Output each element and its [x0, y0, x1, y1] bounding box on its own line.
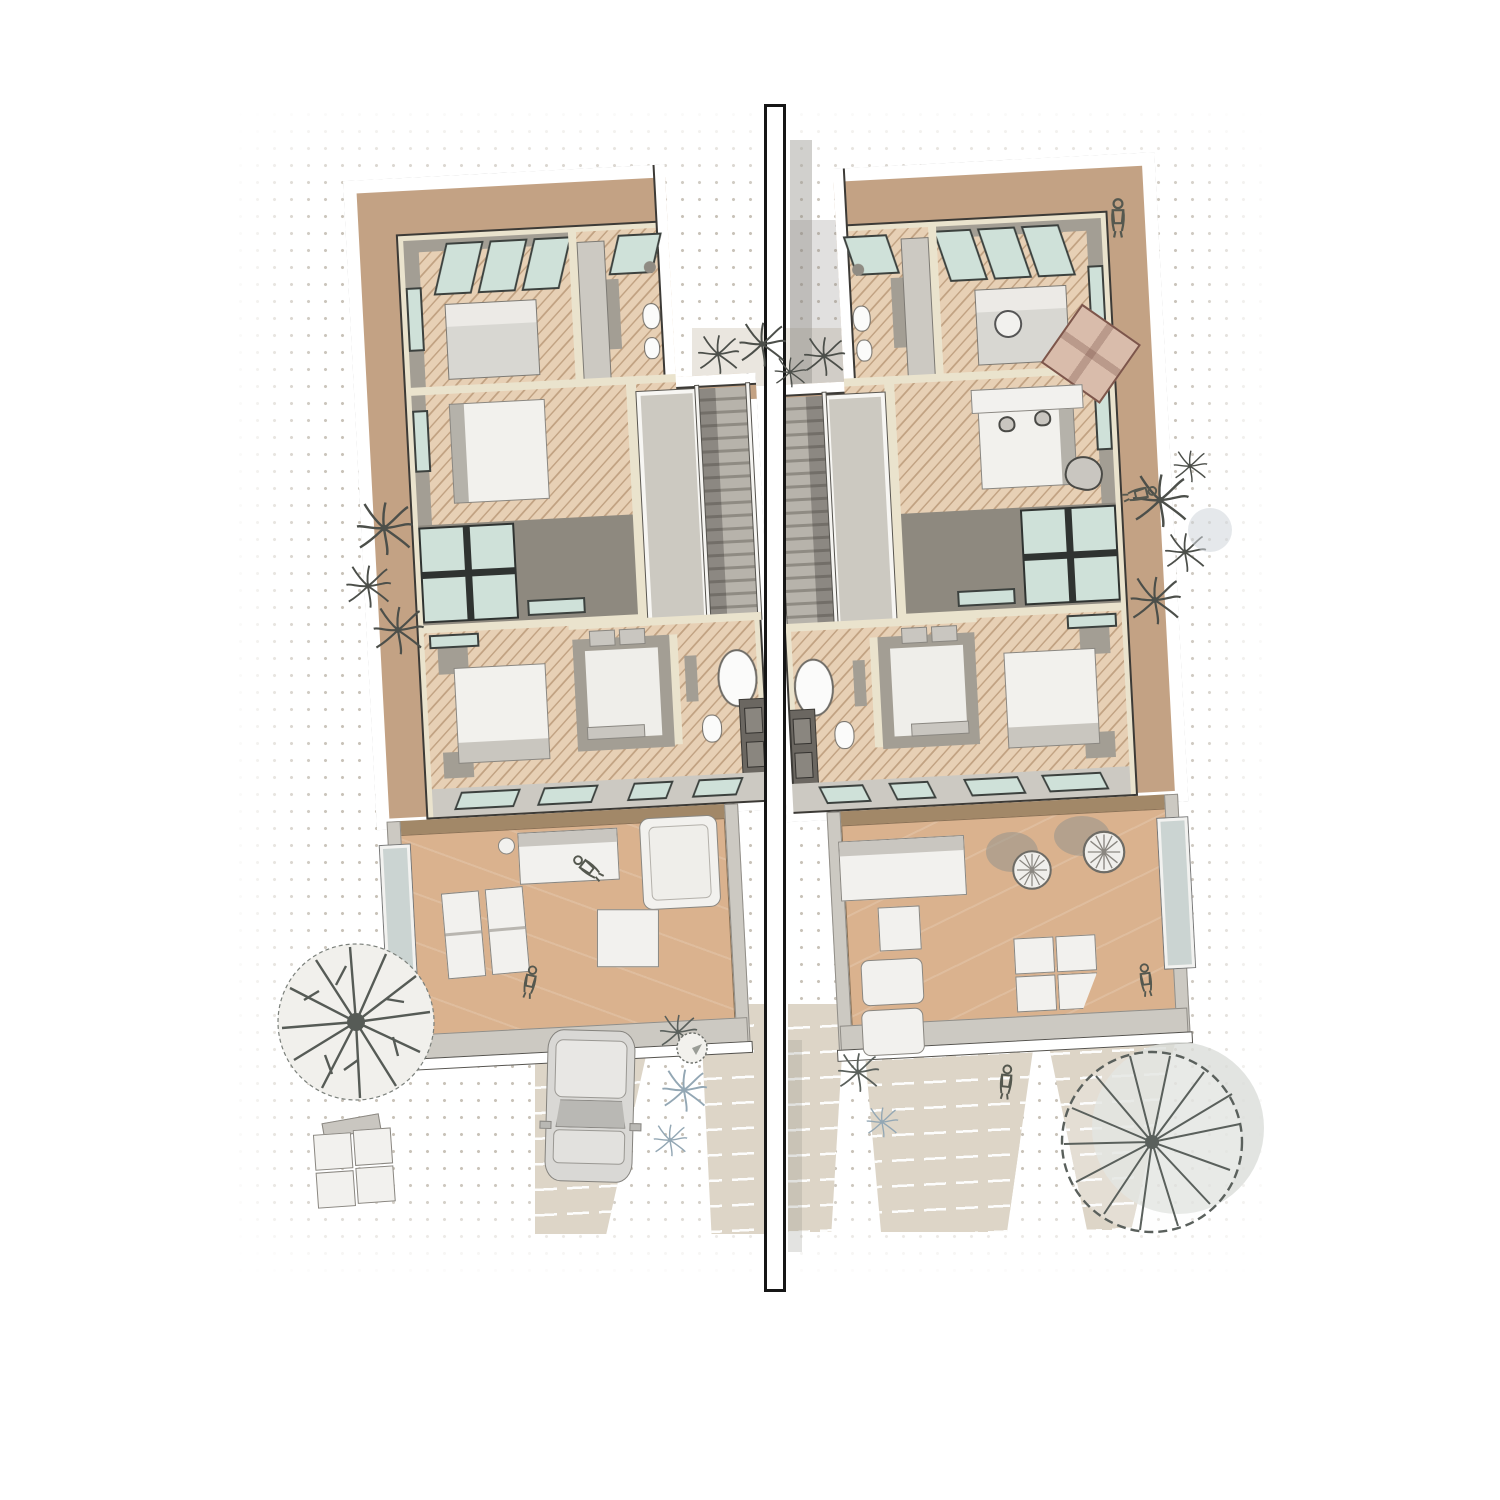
glass-floor — [454, 789, 521, 811]
bed — [449, 399, 550, 504]
car-mirror — [629, 1123, 641, 1131]
vanity-drawer — [794, 752, 813, 779]
bed — [1003, 648, 1100, 749]
toilet — [642, 303, 661, 330]
chair-cushion — [355, 1165, 395, 1204]
bed — [454, 663, 551, 764]
vanity-drawer — [744, 707, 763, 734]
left-dwelling-unit — [343, 160, 791, 1072]
sofa-back — [518, 829, 617, 847]
glass-floor — [1041, 772, 1110, 793]
master-window — [429, 633, 480, 650]
car-windshield — [555, 1099, 626, 1129]
outdoor-sofa — [838, 835, 967, 902]
wardrobe-open-door — [1057, 972, 1099, 1010]
vanity-drawer — [793, 718, 812, 745]
toilet — [834, 721, 855, 750]
void-low-window — [527, 597, 586, 616]
car — [538, 1029, 642, 1184]
bedroom2-window — [412, 410, 431, 473]
chair-cushion — [313, 1132, 353, 1171]
mirrored-shell-wrap — [753, 152, 1201, 1064]
outdoor-chair-set — [312, 1115, 398, 1210]
right-shell-host — [753, 152, 1201, 1064]
car-roof — [554, 1039, 627, 1099]
shelf — [684, 655, 698, 702]
sun-lounger — [860, 957, 924, 1006]
unit-shell — [343, 160, 791, 1072]
bed — [445, 299, 541, 380]
daybed — [639, 814, 722, 910]
glass-floor — [627, 781, 674, 801]
glass-floor — [537, 785, 599, 806]
recliner — [485, 886, 530, 975]
car-mirror — [539, 1121, 551, 1129]
vanity — [789, 709, 819, 790]
bidet — [644, 337, 661, 360]
basket — [619, 628, 646, 645]
glass-floor — [692, 777, 744, 798]
bidet — [856, 339, 873, 362]
car-hood — [552, 1129, 625, 1165]
desk-chair — [1034, 410, 1052, 427]
master-window — [1067, 613, 1118, 630]
outdoor-wardrobe — [1013, 934, 1099, 1012]
headboard — [450, 404, 469, 503]
bed-end — [1008, 723, 1099, 748]
wardrobe-box — [1013, 936, 1055, 974]
sun-lounger — [861, 1007, 925, 1056]
right-driveway — [860, 1036, 1035, 1232]
toilet — [701, 714, 722, 743]
roof-parapet — [343, 160, 778, 830]
glass-floor — [818, 784, 872, 804]
central-party-wall — [764, 104, 786, 1292]
toilet — [852, 305, 871, 332]
chair-cushion — [353, 1127, 393, 1166]
shelf — [853, 660, 867, 707]
wall-shadow-low — [788, 1040, 802, 1252]
outdoor-sofa — [517, 828, 620, 885]
recliner-fold — [489, 926, 525, 932]
basket — [931, 625, 958, 642]
bedroom1-window — [406, 287, 425, 352]
desk-chair — [998, 416, 1016, 433]
bed-end — [458, 738, 549, 763]
architectural-plan-canvas — [0, 0, 1500, 1500]
ottoman-table — [597, 909, 659, 967]
glass-floor — [963, 776, 1027, 796]
unit-shell — [753, 152, 1201, 1064]
basket — [901, 627, 928, 644]
vanity-drawer — [746, 741, 765, 768]
basket — [589, 630, 616, 647]
recliner — [441, 890, 486, 979]
pillow-band — [446, 300, 537, 327]
roof-parapet — [753, 152, 1188, 822]
wardrobe-box — [1055, 934, 1097, 972]
left-shell-host — [343, 160, 791, 1072]
right-dwelling-unit — [753, 152, 1201, 1064]
plunge-pool — [1157, 817, 1195, 968]
picture-window — [418, 523, 519, 624]
pillow-band — [975, 286, 1066, 313]
glass-floor — [888, 781, 937, 801]
daybed-mattress — [648, 824, 712, 901]
void-low-window — [957, 588, 1016, 607]
recliner-fold — [445, 930, 481, 936]
chair-cushion — [316, 1170, 356, 1209]
square-table — [878, 905, 922, 951]
picture-window — [1020, 505, 1121, 606]
wardrobe-box — [1015, 974, 1057, 1012]
